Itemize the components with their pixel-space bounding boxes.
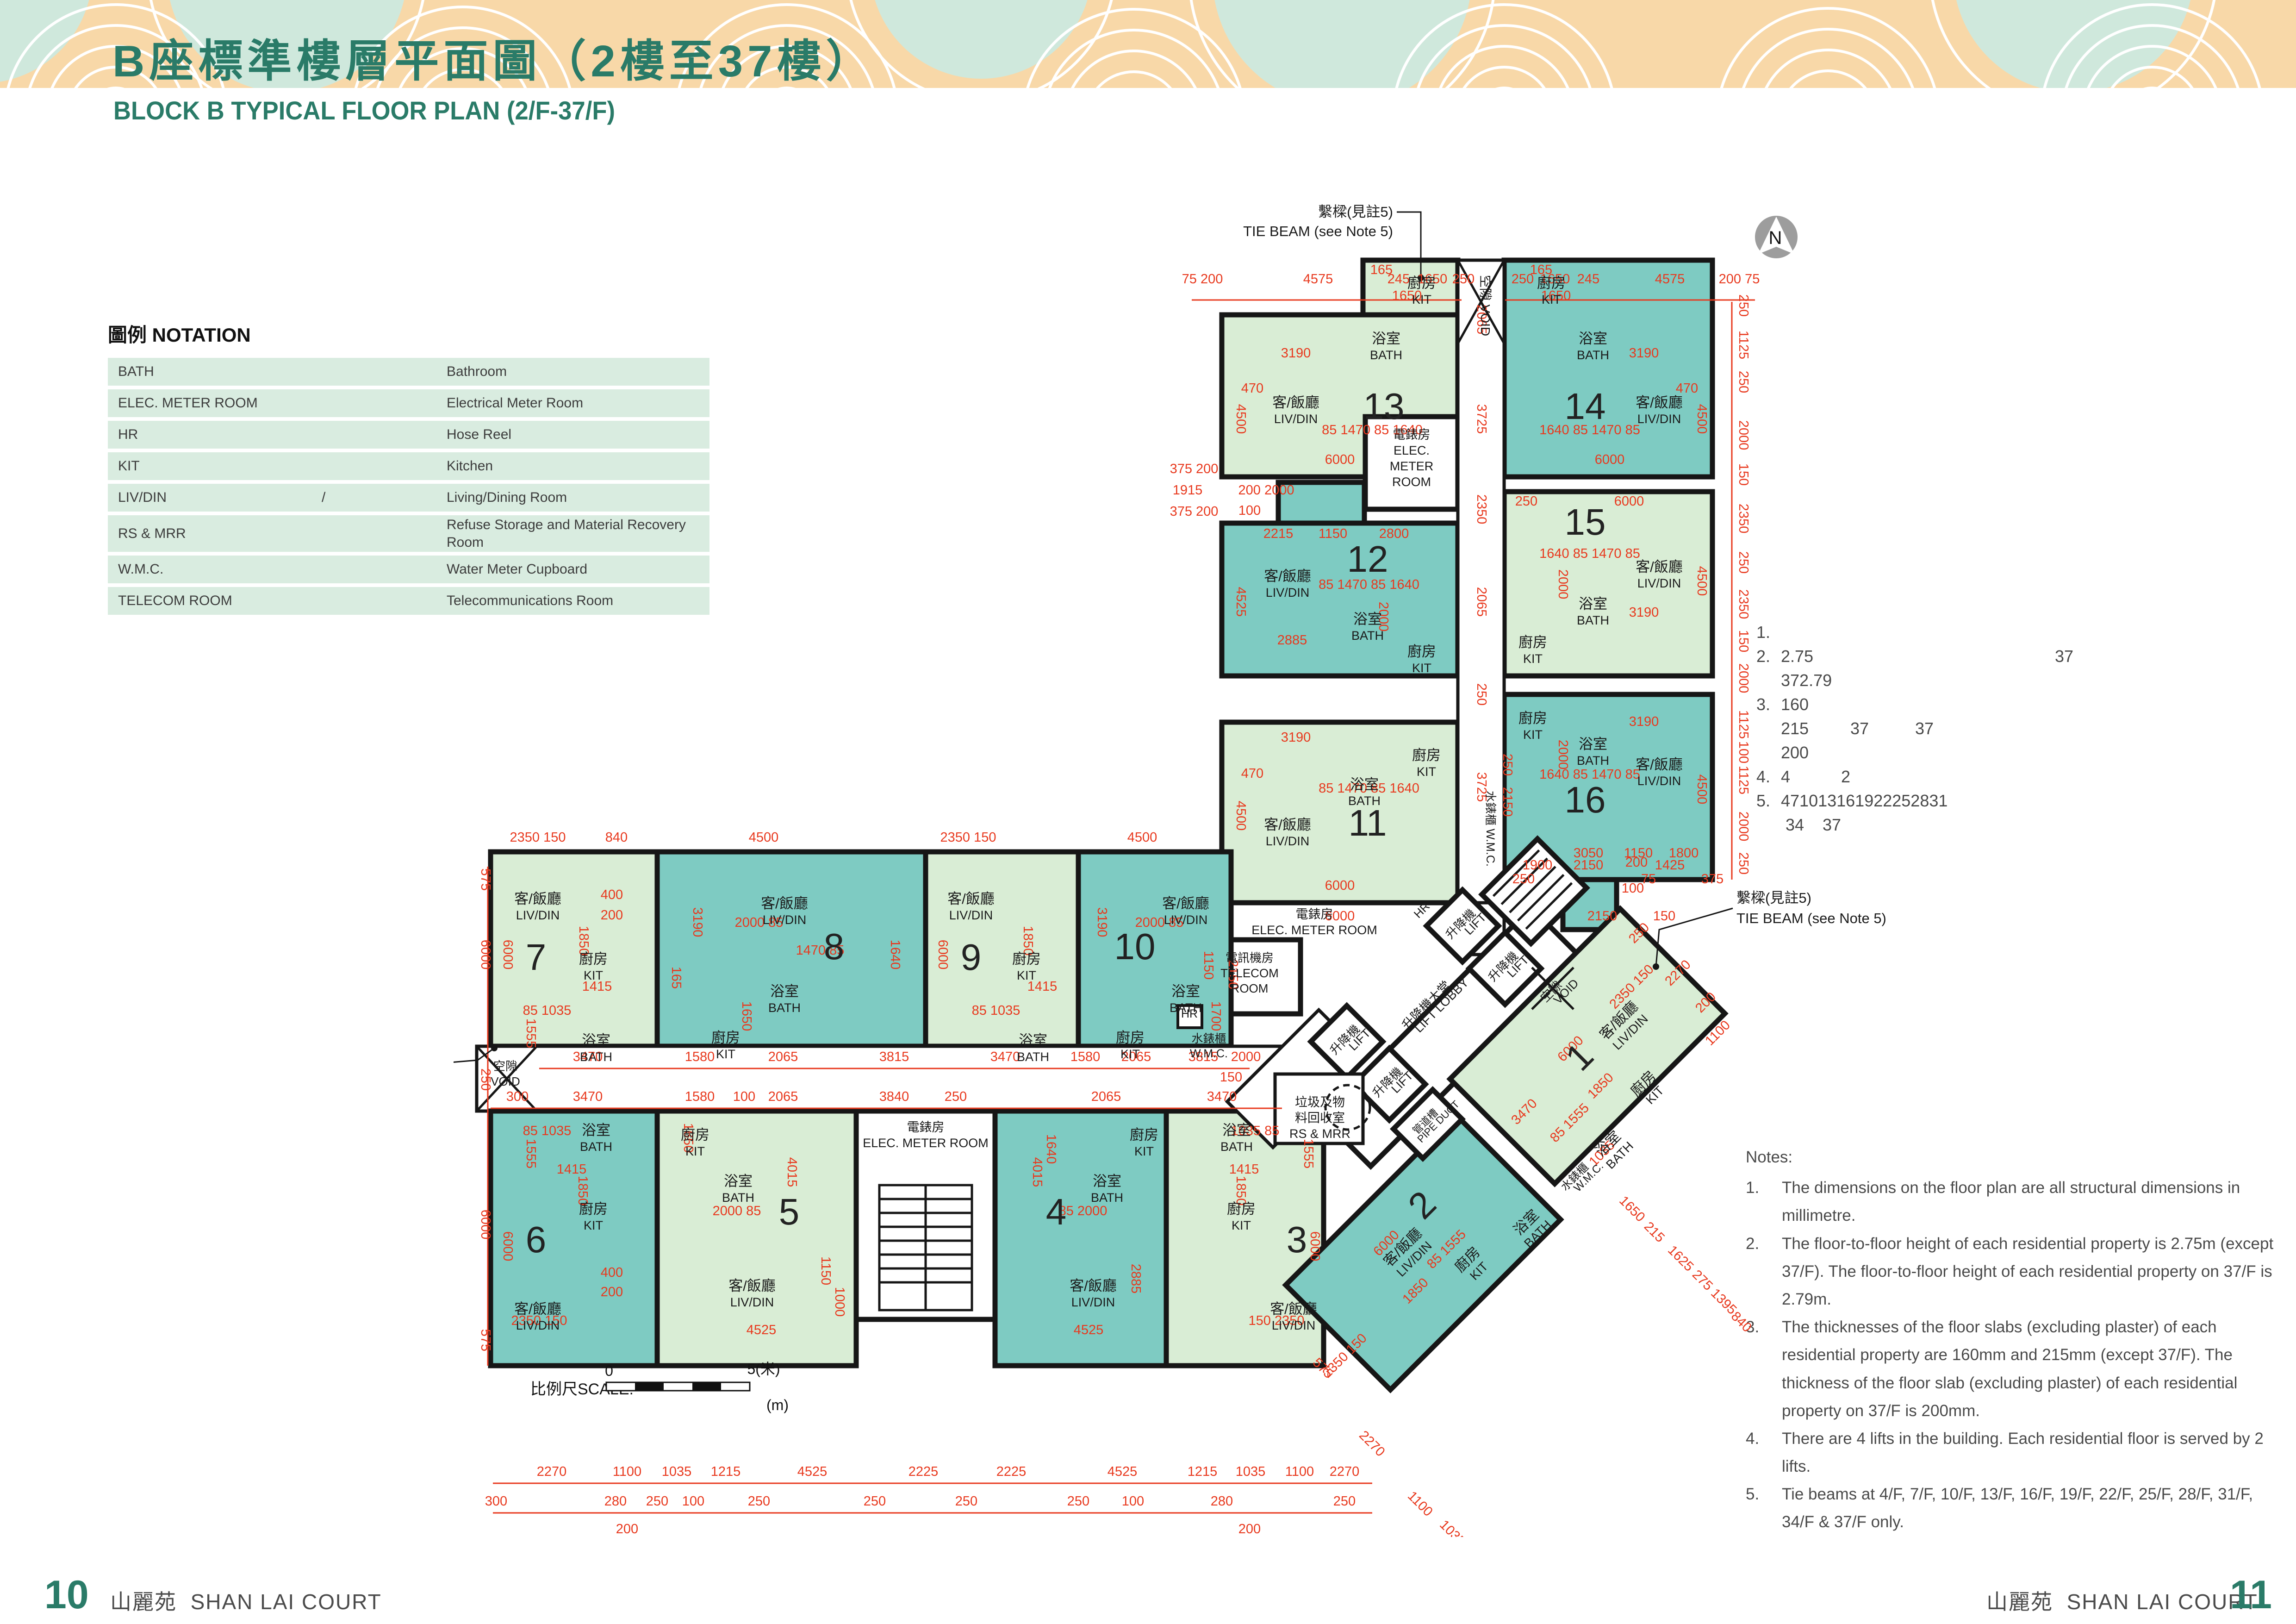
dim-label: 6000 xyxy=(1325,452,1355,467)
notation-cell: KIT xyxy=(118,458,322,474)
room-label-bath-en: BATH xyxy=(1577,613,1609,627)
dim-label: 1640 xyxy=(1044,1134,1058,1164)
room-label-kit-en: KIT xyxy=(584,968,603,982)
dim-label: 200 xyxy=(1625,855,1648,870)
room-label-bath-zh: 浴室 xyxy=(582,1032,610,1049)
room-label-liv-en: LIV/DIN xyxy=(763,913,807,927)
dim-label: 2270 xyxy=(1330,1464,1360,1479)
core-label: 電錶房 xyxy=(1393,428,1431,442)
dim-label: 85 1035 xyxy=(523,1124,572,1138)
room-label-kit-en: KIT xyxy=(1134,1144,1154,1158)
dim-label: 250 xyxy=(1333,1494,1356,1509)
room-label-kit-zh: 廚房 xyxy=(1130,1127,1158,1143)
room-label-liv-zh: 客/飯廳 xyxy=(1264,817,1311,833)
dim-label: 75 200 xyxy=(1182,272,1223,287)
dim-label: 375 xyxy=(1701,872,1724,887)
dim-label: 165 xyxy=(669,967,684,989)
dim-label: 4575 xyxy=(1303,272,1333,287)
tie-beam-label-en: TIE BEAM (see Note 5) xyxy=(1243,223,1393,239)
dim-label: 250 xyxy=(1736,551,1751,574)
room-label-kit-en: KIT xyxy=(716,1047,735,1061)
dim-label: 200 xyxy=(616,1522,638,1537)
core-label: ROOM xyxy=(1392,475,1431,489)
unit-number-8: 8 xyxy=(824,926,845,967)
room-label-liv-zh: 客/飯廳 xyxy=(728,1278,776,1294)
dim-label: 2000 xyxy=(1231,1049,1261,1064)
room-label-bath-zh: 浴室 xyxy=(1579,331,1607,347)
room-label-kit-zh: 廚房 xyxy=(579,951,608,967)
dim-label: 245 xyxy=(1577,272,1599,287)
dim-label: 2000 xyxy=(1736,812,1751,842)
dim-label: 400 xyxy=(601,887,623,902)
tie-beam-label-zh: 繫樑(見註5) xyxy=(1318,204,1393,220)
notation-cell: BATH xyxy=(118,364,322,380)
north-arrow-icon: N xyxy=(1755,216,1798,258)
dim-label: 250 xyxy=(1736,852,1751,874)
dim-label: 85 1035 xyxy=(972,1003,1020,1018)
dim-label: 250 xyxy=(1067,1494,1089,1509)
room-label-kit-zh: 廚房 xyxy=(1518,710,1547,726)
dim-label: 165 xyxy=(1370,262,1393,277)
unit-7 xyxy=(491,852,657,1046)
room-label-kit-zh: 廚房 xyxy=(1412,747,1441,763)
core-label: ROOM xyxy=(1231,981,1269,995)
dim-label: 2225 xyxy=(996,1464,1027,1479)
room-label-kit-zh: 廚房 xyxy=(1518,634,1547,650)
core-label: 空隙 VOID xyxy=(1478,275,1493,336)
dim-label: 2350 xyxy=(1736,589,1751,619)
scale-bar: 比例尺SCALE: 0 5(米) (m) xyxy=(530,1361,789,1413)
dim-label: 3190 xyxy=(1281,730,1311,745)
corridor-top-wing xyxy=(1458,260,1504,908)
dim-label: 100 xyxy=(1736,741,1751,763)
dim-label: 2000 xyxy=(1736,663,1751,693)
room-label-bath-zh: 浴室 xyxy=(1222,1122,1251,1138)
unit-number-4: 4 xyxy=(1046,1191,1067,1232)
notation-cell: / xyxy=(322,490,447,506)
room-label-bath-zh: 浴室 xyxy=(1093,1173,1121,1189)
room-label-liv-en: LIV/DIN xyxy=(1266,586,1310,600)
dim-label: 4015 xyxy=(1030,1157,1045,1187)
dim-label: 6000 xyxy=(478,940,493,970)
dim-label: 6000 xyxy=(500,1231,515,1262)
dim-label: 1580 xyxy=(685,1089,715,1104)
dim-label: 250 xyxy=(748,1494,770,1509)
dim-label: 1555 xyxy=(1301,1139,1316,1169)
dim-label: 6000 xyxy=(1325,878,1355,893)
dim-label: 1150 xyxy=(818,1256,833,1285)
room-label-kit-en: KIT xyxy=(1412,293,1431,306)
dim-label: 2350 xyxy=(1474,494,1489,525)
dim-label: 150 xyxy=(1736,630,1751,652)
room-label-kit-en: KIT xyxy=(1412,661,1431,675)
dim-label: 2885 xyxy=(1277,633,1307,648)
room-label-bath-en: BATH xyxy=(722,1191,754,1205)
dim-label: 3190 xyxy=(1281,346,1311,361)
core-label: METER xyxy=(1390,459,1434,473)
note-zh-fragment: 37 xyxy=(1915,719,1934,738)
dim-label: 840 xyxy=(605,830,628,845)
dim-label: 250 xyxy=(945,1089,967,1104)
unit-number-14: 14 xyxy=(1565,386,1606,427)
dim-label: 280 xyxy=(1211,1494,1233,1509)
dim-label: 250 xyxy=(1500,754,1515,776)
room-label-bath-en: BATH xyxy=(768,1001,801,1015)
tie-beam-right: 繫樑(見註5) TIE BEAM (see Note 5) xyxy=(1653,890,1886,970)
room-label-bath-en: BATH xyxy=(1017,1050,1049,1064)
dim-label: 2065 xyxy=(1091,1089,1121,1104)
room-label-bath-zh: 浴室 xyxy=(1019,1032,1047,1049)
unit-number-6: 6 xyxy=(526,1219,547,1260)
core-label: RS & MRR xyxy=(1289,1127,1350,1141)
dim-label: 1125 xyxy=(1736,331,1751,359)
dim-label: 3725 xyxy=(1474,404,1489,434)
dim-label: 375 200 xyxy=(1170,504,1219,519)
dim-label: 150 xyxy=(1220,1070,1242,1085)
dim-label: 200 xyxy=(1238,1522,1261,1537)
dim-label: 2885 xyxy=(1128,1264,1143,1294)
room-label-bath-zh: 浴室 xyxy=(1353,611,1382,627)
estate-name-left: 山麗苑 SHAN LAI COURT xyxy=(110,1585,382,1616)
dim-label: 2215 xyxy=(1263,526,1294,541)
core-label: ELEC. METER ROOM xyxy=(1251,923,1377,937)
dim-label: 1100 xyxy=(1285,1464,1314,1479)
dim-label: 4525 xyxy=(747,1323,777,1337)
unit-number-5: 5 xyxy=(779,1191,800,1232)
dim-label: 1580 xyxy=(1070,1049,1101,1064)
dim-label: 1415 xyxy=(557,1162,587,1177)
dim-label: 2270 xyxy=(537,1464,567,1479)
page-title-zh: B座標準樓層平面圖（2樓至37樓） xyxy=(112,25,875,89)
core-label: 電錶房 xyxy=(907,1120,945,1134)
dim-label: 250 xyxy=(1452,272,1475,287)
dim-label: 400 xyxy=(601,1265,623,1280)
page-number-left: 10 xyxy=(44,1572,89,1618)
room-label-liv-en: LIV/DIN xyxy=(1274,412,1318,426)
dim-label: 75 xyxy=(1641,872,1656,887)
room-label-liv-en: LIV/DIN xyxy=(1071,1295,1115,1309)
room-label-liv-en: LIV/DIN xyxy=(1266,834,1310,848)
dim-label: 4500 xyxy=(1127,830,1157,845)
dim-label: 2065 xyxy=(1474,587,1489,617)
tie-beam-label-zh: 繫樑(見註5) xyxy=(1736,890,1811,906)
dim-label: 3840 xyxy=(879,1089,909,1104)
unit-number-11: 11 xyxy=(1348,802,1387,843)
dim-label: 1915 xyxy=(1173,483,1203,498)
dim-label: 2065 xyxy=(768,1049,798,1064)
room-label-kit-zh: 廚房 xyxy=(681,1127,709,1143)
room-label-kit-zh: 廚房 xyxy=(1407,643,1436,660)
room-label-bath-en: BATH xyxy=(1220,1140,1253,1154)
room-label-kit-en: KIT xyxy=(1417,765,1436,779)
dim-label: 100 xyxy=(682,1494,704,1509)
dim-label: 2270 xyxy=(1356,1428,1388,1460)
room-label-kit-en: KIT xyxy=(584,1218,603,1232)
dim-label: 6000 xyxy=(1614,494,1644,509)
unit-number-3: 3 xyxy=(1287,1219,1307,1260)
room-label-liv-en: LIV/DIN xyxy=(1272,1318,1316,1332)
unit-number-12: 12 xyxy=(1347,538,1388,580)
dim-label: 250 xyxy=(864,1494,886,1509)
unit-number-15: 15 xyxy=(1565,501,1606,543)
room-label-liv-zh: 客/飯廳 xyxy=(761,895,808,912)
dim-label: 1700 xyxy=(1208,1001,1223,1031)
dim-label: 200 75 xyxy=(1719,272,1760,287)
unit-number-16: 16 xyxy=(1565,779,1606,820)
dim-label: 4500 xyxy=(1233,801,1248,831)
dim-label: 300 xyxy=(506,1089,529,1104)
dim-label: 1150 xyxy=(1201,951,1216,980)
dim-label: 1425 xyxy=(1655,858,1685,873)
room-label-liv-zh: 客/飯廳 xyxy=(1264,568,1311,584)
dim-label: 4500 xyxy=(1694,566,1709,596)
room-label-bath-en: BATH xyxy=(580,1050,612,1064)
page: B座標準樓層平面圖（2樓至37樓） BLOCK B TYPICAL FLOOR … xyxy=(0,0,2296,1624)
room-label-liv-zh: 客/飯廳 xyxy=(1272,394,1319,411)
core-label: 垃圾及物 xyxy=(1295,1095,1345,1109)
note-zh-fragment: 37 xyxy=(2055,647,2073,666)
estate-name-right: 山麗苑 SHAN LAI COURT xyxy=(1986,1585,2258,1616)
unit-number-7: 7 xyxy=(526,937,547,978)
dim-label: 2000 xyxy=(1556,569,1570,600)
room-label-liv-en: LIV/DIN xyxy=(730,1295,774,1309)
core-label: 料回收室 xyxy=(1295,1111,1345,1125)
dim-label: 4525 xyxy=(1108,1464,1138,1479)
room-label-kit-en: KIT xyxy=(685,1144,705,1158)
dim-label: 100 xyxy=(1238,503,1261,518)
room-label-bath-en: BATH xyxy=(580,1140,612,1154)
core-label: 水錶櫃 W.M.C. xyxy=(1484,791,1497,867)
unit-number-13: 13 xyxy=(1363,386,1405,427)
room-label-bath-zh: 浴室 xyxy=(1350,776,1379,793)
room-label-kit-en: KIT xyxy=(1542,293,1561,306)
north-letter: N xyxy=(1769,228,1782,248)
dim-label: 1215 xyxy=(711,1464,741,1479)
dim-label: 1215 xyxy=(1188,1464,1218,1479)
room-label-liv-en: LIV/DIN xyxy=(516,908,560,922)
dim-label: 1415 xyxy=(1229,1162,1259,1177)
scale-metres: (m) xyxy=(766,1397,789,1413)
dim-label: 1555 xyxy=(523,1018,538,1049)
dim-label: 1650 xyxy=(739,1001,754,1031)
notation-cell: RS & MRR xyxy=(118,526,322,542)
notation-cell: ELEC. METER ROOM xyxy=(118,395,322,411)
dim-label: 3190 xyxy=(1095,907,1109,937)
dim-label: 2150 xyxy=(1574,858,1604,873)
dim-label: 4525 xyxy=(1074,1323,1104,1337)
dim-label: 2350 150 xyxy=(510,830,566,845)
dim-label: 1150 xyxy=(1319,526,1347,541)
dim-label: 2150 xyxy=(1587,909,1618,924)
room-label-bath-zh: 浴室 xyxy=(724,1173,753,1189)
dim-label: 215 xyxy=(1641,1219,1668,1245)
dim-label: 6000 xyxy=(935,940,950,970)
room-label-bath-zh: 浴室 xyxy=(770,983,799,999)
room-label-liv-en: LIV/DIN xyxy=(516,1318,560,1332)
room-label-bath-zh: 浴室 xyxy=(1579,736,1607,752)
dim-label: 1125 xyxy=(1736,710,1751,739)
dim-label: 470 xyxy=(1241,766,1263,781)
tie-beam-label-en: TIE BEAM (see Note 5) xyxy=(1736,910,1886,926)
core-label: ELEC. METER ROOM xyxy=(863,1136,989,1150)
room-label-liv-zh: 客/飯廳 xyxy=(514,1301,561,1317)
dim-label: 6000 xyxy=(500,940,515,970)
dim-label: 250 xyxy=(1512,872,1535,887)
dim-label: 3190 xyxy=(1629,714,1659,729)
room-label-bath-en: BATH xyxy=(1577,348,1609,362)
dim-label: 470 xyxy=(1241,381,1263,396)
dim-label: 3470 xyxy=(573,1089,603,1104)
room-label-kit-en: KIT xyxy=(1523,652,1543,666)
dim-label: 2350 150 xyxy=(940,830,996,845)
dim-label: 2000 xyxy=(1736,420,1751,450)
dim-label: 4500 xyxy=(1233,404,1248,434)
dim-label: 280 xyxy=(604,1494,627,1509)
room-label-liv-zh: 客/飯廳 xyxy=(1636,756,1683,773)
room-label-kit-en: KIT xyxy=(1017,968,1036,982)
dim-label: 85 1035 xyxy=(523,1003,572,1018)
room-label-bath-zh: 浴室 xyxy=(1171,983,1200,999)
core-label: ELEC. xyxy=(1394,443,1430,457)
dim-label: 2065 xyxy=(768,1089,798,1104)
dim-label: 575 xyxy=(478,868,493,891)
dim-label: 4500 xyxy=(749,830,779,845)
room-label-kit-en: KIT xyxy=(1232,1218,1251,1232)
dim-label: 200 xyxy=(601,1285,623,1299)
core-label: VOID xyxy=(491,1074,520,1088)
dim-label: 4575 xyxy=(1655,272,1685,287)
room-label-liv-zh: 客/飯廳 xyxy=(1636,394,1683,411)
dim-label: 3190 xyxy=(1629,346,1659,361)
room-label-liv-zh: 客/飯廳 xyxy=(1270,1301,1317,1317)
notation-cell: TELECOM ROOM xyxy=(118,593,322,609)
dim-label: 150 xyxy=(1653,909,1675,924)
dim-label: 1000 xyxy=(832,1287,847,1317)
dim-label: 4015 xyxy=(784,1157,799,1187)
dim-label: 1035 xyxy=(662,1464,692,1479)
room-label-liv-en: LIV/DIN xyxy=(949,908,993,922)
room-label-bath-en: BATH xyxy=(1348,794,1381,808)
dim-label: 3190 xyxy=(1629,605,1659,620)
floor-plan: 繫樑(見註5) TIE BEAM (see Note 5) 繫樑(見註5) TI… xyxy=(454,185,1888,1537)
dim-label: 250 xyxy=(955,1494,977,1509)
dim-label: 275 xyxy=(1689,1267,1716,1293)
room-label-liv-en: LIV/DIN xyxy=(1637,412,1681,426)
page-title-en: BLOCK B TYPICAL FLOOR PLAN (2/F-37/F) xyxy=(113,95,615,125)
core-label: W.M.C. xyxy=(1190,1047,1228,1060)
room-label-kit-en: KIT xyxy=(1120,1047,1140,1061)
dim-label: 1640 85 1470 85 xyxy=(1539,546,1640,561)
dim-label: 200 xyxy=(601,908,623,923)
dim-label: 250 xyxy=(1474,683,1489,706)
dim-label: 250 xyxy=(1736,294,1751,317)
dim-label: 6000 xyxy=(1307,1231,1322,1262)
room-label-liv-zh: 客/飯廳 xyxy=(514,891,561,907)
dim-label: 100 xyxy=(733,1089,755,1104)
dim-label: 1650 xyxy=(1616,1193,1648,1225)
scale-five: 5(米) xyxy=(747,1361,780,1377)
unit-14 xyxy=(1504,260,1712,477)
room-label-liv-en: LIV/DIN xyxy=(1164,913,1208,927)
dim-label: 250 xyxy=(646,1494,668,1509)
room-label-bath-zh: 浴室 xyxy=(1372,331,1400,347)
notation-cell: W.M.C. xyxy=(118,562,322,577)
dim-label: 1555 xyxy=(523,1139,538,1169)
dim-label: 6000 xyxy=(1595,452,1625,467)
unit-8 xyxy=(657,852,926,1046)
core-label: HR xyxy=(1181,1007,1198,1020)
dim-label: 2000 xyxy=(1556,740,1570,770)
dim-label: 2350 xyxy=(1736,504,1751,534)
room-label-kit-zh: 廚房 xyxy=(711,1030,740,1046)
core-label: 空隙 xyxy=(493,1059,517,1073)
dim-label: 1640 xyxy=(888,940,902,970)
dim-label: 6000 xyxy=(478,1210,493,1240)
notation-cell: HR xyxy=(118,427,322,443)
dim-label: 4500 xyxy=(1694,775,1709,805)
room-label-bath-zh: 浴室 xyxy=(582,1122,610,1138)
room-label-bath-en: BATH xyxy=(1091,1191,1123,1205)
scale-zero: 0 xyxy=(605,1362,613,1379)
dim-label: 1900 xyxy=(1523,858,1553,873)
dim-label: 3470 xyxy=(990,1049,1020,1064)
dim-label: 1100 xyxy=(613,1464,641,1479)
core-label: 水錶櫃 xyxy=(1191,1032,1226,1045)
dim-label: 4525 xyxy=(797,1464,828,1479)
dim-label: 1100 xyxy=(1405,1488,1436,1519)
dim-label: 2150 xyxy=(1500,787,1515,817)
dim-label: 250 xyxy=(1515,494,1537,509)
room-label-kit-zh: 廚房 xyxy=(579,1201,608,1217)
dim-label: 1035 xyxy=(1437,1518,1468,1537)
dim-label: 375 200 xyxy=(1170,462,1219,476)
dim-label: 3815 xyxy=(879,1049,909,1064)
dim-label: 3190 xyxy=(690,907,705,937)
room-label-kit-en: KIT xyxy=(1523,728,1543,742)
room-label-bath-zh: 浴室 xyxy=(1579,596,1607,612)
dim-label: 300 xyxy=(485,1494,507,1509)
room-label-liv-en: LIV/DIN xyxy=(1637,774,1681,788)
core-label: 電錶房 xyxy=(1296,907,1333,921)
page-number-right: 11 xyxy=(2230,1572,2272,1618)
core-label: 電訊機房 xyxy=(1226,951,1274,965)
room-label-kit-zh: 廚房 xyxy=(1227,1201,1256,1217)
room-label-bath-en: BATH xyxy=(1577,754,1609,768)
unit-number-10: 10 xyxy=(1114,926,1156,967)
dim-label: 1580 xyxy=(685,1049,715,1064)
room-label-kit-zh: 廚房 xyxy=(1537,275,1566,291)
core-label: TELECOM xyxy=(1220,966,1279,980)
dim-label: 100 xyxy=(1122,1494,1144,1509)
notation-cell: LIV/DIN xyxy=(118,490,322,506)
dim-label: 200 2000 xyxy=(1238,483,1294,498)
dim-label: 470 xyxy=(1676,381,1698,396)
dim-label: 2000 85 xyxy=(713,1204,761,1218)
dim-label: 1035 xyxy=(1236,1464,1266,1479)
dim-label: 575 xyxy=(478,1329,493,1351)
room-label-liv-zh: 客/飯廳 xyxy=(947,891,995,907)
dim-label: 1625 xyxy=(1665,1243,1696,1274)
unit-number-9: 9 xyxy=(961,937,982,978)
dim-label: 4525 xyxy=(1233,587,1248,617)
room-label-liv-zh: 客/飯廳 xyxy=(1636,559,1683,575)
dim-label: 2225 xyxy=(908,1464,939,1479)
room-label-kit-zh: 廚房 xyxy=(1116,1030,1145,1046)
room-label-liv-zh: 客/飯廳 xyxy=(1070,1278,1117,1294)
room-label-kit-zh: 廚房 xyxy=(1012,951,1041,967)
room-label-kit-zh: 廚房 xyxy=(1407,275,1436,291)
dim-label: 3470 xyxy=(1207,1089,1237,1104)
